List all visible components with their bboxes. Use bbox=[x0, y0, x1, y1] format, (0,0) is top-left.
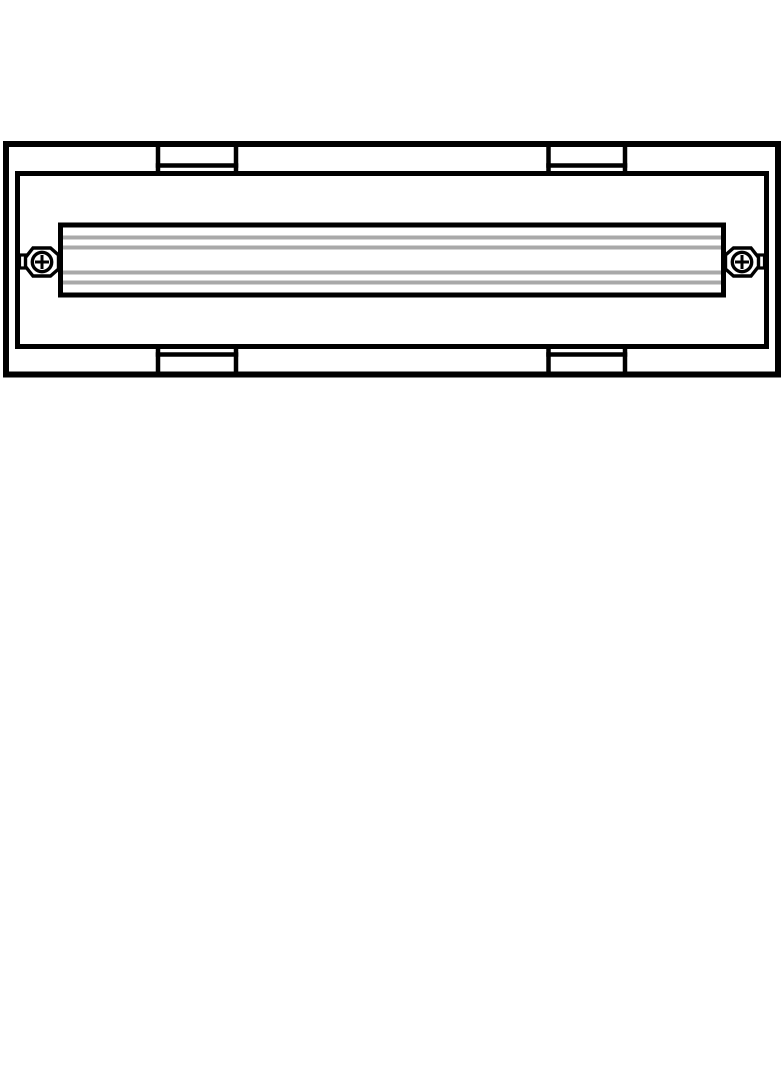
drawing-page bbox=[0, 0, 784, 1066]
bottom-left-tab bbox=[156, 347, 239, 375]
bottom-right-tab bbox=[546, 347, 627, 375]
top-left-tab bbox=[156, 144, 239, 174]
left-captive-screw bbox=[20, 248, 59, 276]
right-captive-screw bbox=[726, 248, 765, 276]
bar-rib-3 bbox=[63, 271, 721, 275]
top-right-tab bbox=[546, 144, 627, 174]
technical-drawing-canvas bbox=[0, 0, 784, 1066]
bar-rib-4 bbox=[63, 281, 721, 285]
bar-rib-1 bbox=[63, 236, 721, 240]
ribbed-center-bar bbox=[61, 225, 724, 295]
bar-rib-2 bbox=[63, 246, 721, 250]
